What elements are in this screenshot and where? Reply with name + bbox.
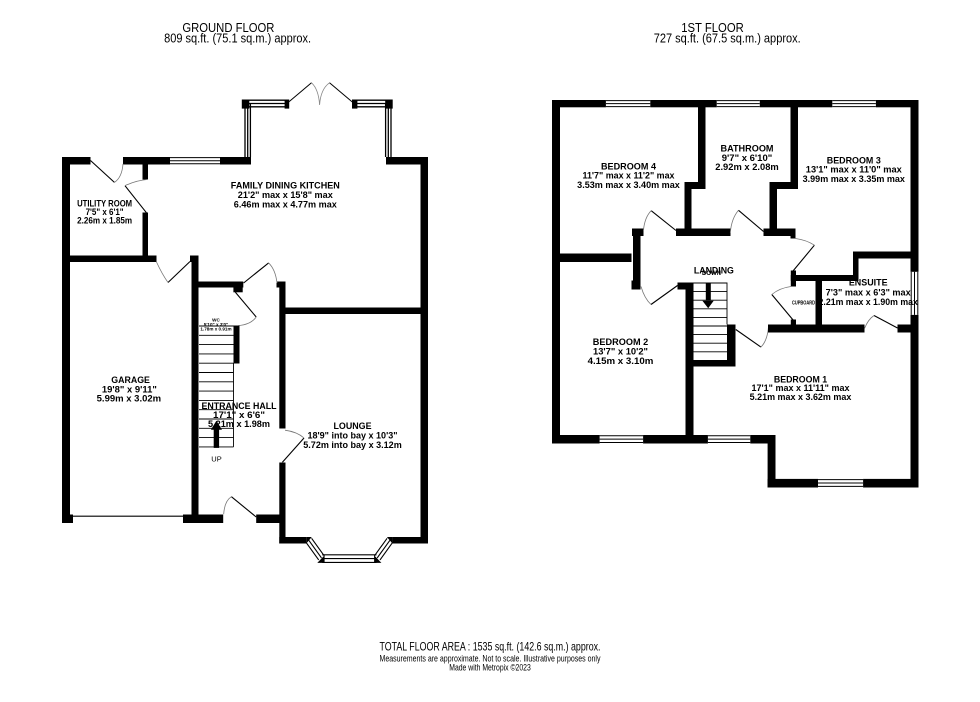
svg-text:2.26m x 1.85m: 2.26m x 1.85m bbox=[77, 216, 132, 226]
svg-text:CUPBOARD: CUPBOARD bbox=[792, 301, 815, 307]
svg-text:5.21m max x 3.62m max: 5.21m max x 3.62m max bbox=[750, 392, 852, 402]
svg-text:LANDING: LANDING bbox=[694, 265, 734, 275]
svg-text:UP: UP bbox=[211, 455, 221, 464]
svg-text:Made with Metropix ©2023: Made with Metropix ©2023 bbox=[449, 662, 531, 672]
svg-text:727 sq.ft. (67.5 sq.m.) approx: 727 sq.ft. (67.5 sq.m.) approx. bbox=[654, 32, 801, 46]
svg-text:21'2" max x 15'8" max: 21'2" max x 15'8" max bbox=[238, 190, 333, 200]
svg-text:5.21m x 1.98m: 5.21m x 1.98m bbox=[208, 419, 270, 429]
svg-text:4.15m x 3.10m: 4.15m x 3.10m bbox=[588, 356, 654, 366]
svg-text:2.21m max x 1.90m max: 2.21m max x 1.90m max bbox=[819, 297, 918, 307]
svg-text:6.46m max x 4.77m max: 6.46m max x 4.77m max bbox=[234, 200, 337, 210]
svg-text:5.99m x 3.02m: 5.99m x 3.02m bbox=[97, 394, 162, 404]
svg-text:7'3" max x 6'3" max: 7'3" max x 6'3" max bbox=[826, 287, 911, 297]
svg-text:TOTAL FLOOR AREA : 1535 sq.ft.: TOTAL FLOOR AREA : 1535 sq.ft. (142.6 sq… bbox=[380, 639, 601, 653]
svg-text:1.78m x 0.91m: 1.78m x 0.91m bbox=[200, 326, 231, 331]
svg-text:809 sq.ft. (75.1 sq.m.) approx: 809 sq.ft. (75.1 sq.m.) approx. bbox=[164, 32, 311, 46]
svg-text:5.72m into bay x 3.12m: 5.72m into bay x 3.12m bbox=[303, 440, 402, 450]
svg-text:BEDROOM 2: BEDROOM 2 bbox=[593, 337, 648, 347]
svg-text:FAMILY DINING KITCHEN: FAMILY DINING KITCHEN bbox=[231, 181, 340, 191]
svg-text:13'7" x 10'2": 13'7" x 10'2" bbox=[593, 346, 648, 356]
svg-text:2.92m x 2.08m: 2.92m x 2.08m bbox=[715, 162, 779, 172]
svg-text:3.53m max x 3.40m max: 3.53m max x 3.40m max bbox=[577, 180, 680, 190]
svg-text:3.99m max x 3.35m max: 3.99m max x 3.35m max bbox=[803, 174, 905, 184]
svg-text:ENSUITE: ENSUITE bbox=[849, 278, 888, 288]
